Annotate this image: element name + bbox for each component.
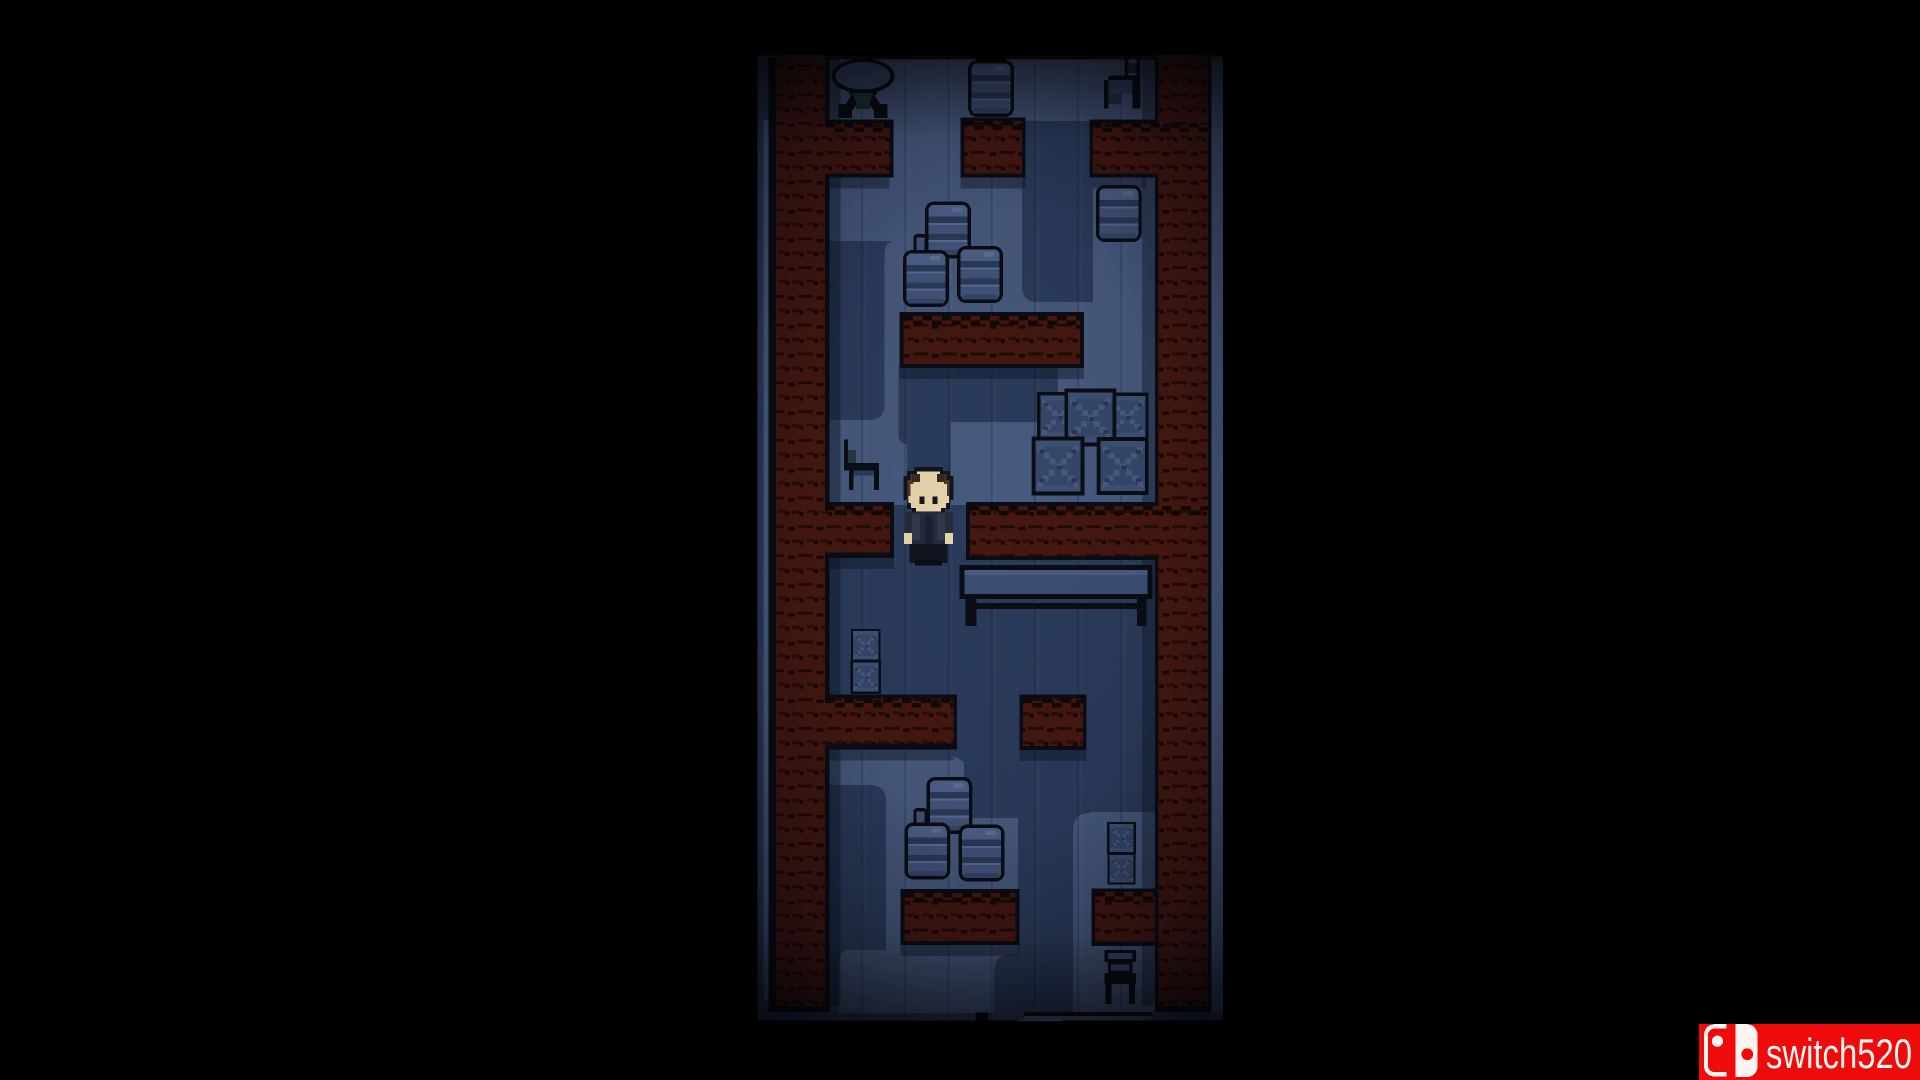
svg-text:switch520: switch520 — [1766, 1030, 1912, 1077]
